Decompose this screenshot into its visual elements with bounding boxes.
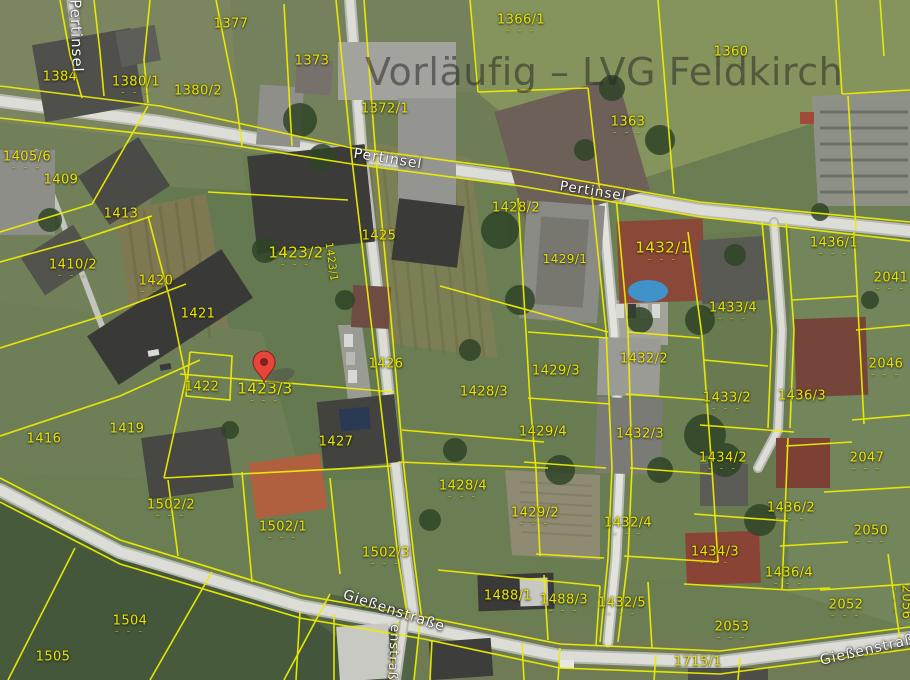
satellite-map	[0, 0, 910, 680]
map-viewport[interactable]: 138413771380/1– – –1380/213731372/11366/…	[0, 0, 910, 680]
